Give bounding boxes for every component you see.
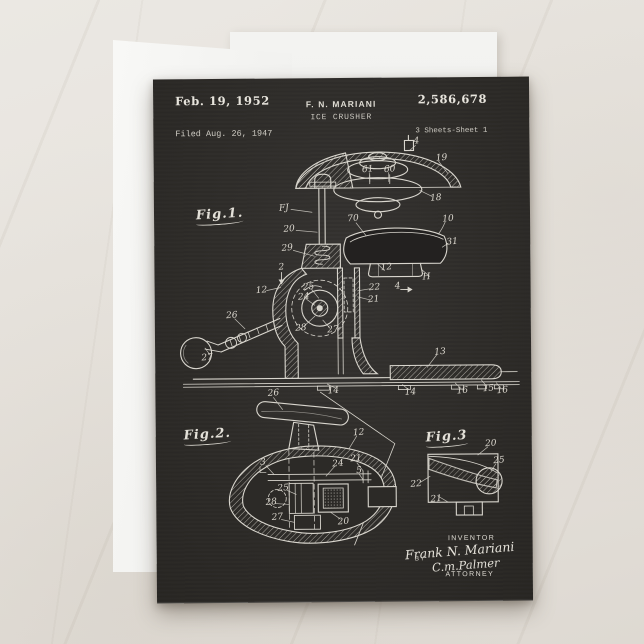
figure-3-drawing (420, 447, 503, 516)
attorney-caption: ATTORNEY (437, 571, 503, 579)
fig3-label: Fig.3 (425, 428, 468, 448)
figure-1-drawing (179, 135, 519, 392)
fig2-label: Fig.2. (183, 426, 231, 447)
patent-drawing (153, 77, 533, 604)
fig1-label: Fig.1. (196, 206, 244, 227)
figure-2-drawing (229, 392, 397, 546)
product-photo-scene: { "colors":{ "marble":"#e7e3dd", "backin… (0, 0, 644, 644)
patent-card: Feb. 19, 1952 F. N. MARIANI 2,586,678 IC… (153, 77, 533, 604)
